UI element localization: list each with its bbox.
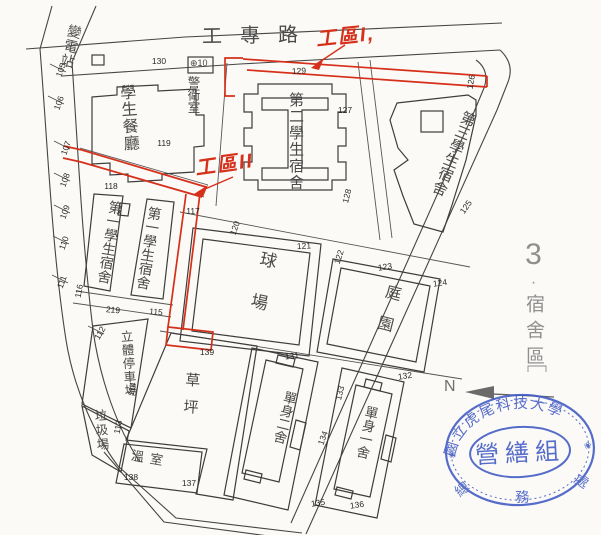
map-number: 123 (377, 262, 392, 272)
dorm3-annex (421, 111, 443, 132)
substation-box (92, 55, 104, 65)
map-number: 124 (432, 278, 447, 288)
guard-room-label: 警衛室 (186, 76, 199, 114)
map-number: 116 (74, 284, 85, 299)
single2-building (242, 360, 303, 482)
dorm2-label: 第二學生宿舍 (288, 92, 303, 191)
map-number: 114 (127, 382, 138, 397)
map-number: 219 (106, 305, 121, 315)
office-stamp: 國立虎尾科技大學 營繕組 總 務 處 ❀ ❀ (435, 382, 601, 520)
road-name-label: 工專路 (202, 25, 316, 47)
map-number: 131 (285, 351, 300, 361)
map-number: 132 (397, 371, 412, 381)
map-number: 115 (149, 307, 163, 317)
map-number: 129 (292, 66, 307, 75)
stamp-division: 營繕組 (474, 438, 565, 470)
area-name: 宿舍區 (524, 294, 543, 372)
map-number: 118 (104, 182, 118, 191)
stamp-office-char3: 處 (571, 470, 591, 491)
area-section-label: 3 · 宿舍區 (524, 238, 543, 372)
map-number: 117 (186, 207, 200, 216)
map-number: 130 (152, 57, 166, 66)
guard-number-label: ⊕10 (190, 59, 208, 68)
map-number: 138 (124, 473, 138, 482)
stamp-flower-left-icon: ❀ (448, 449, 456, 459)
map-number: 136 (349, 500, 364, 510)
map-number: 137 (182, 479, 196, 488)
map-number: 139 (200, 348, 214, 357)
single2-plot (224, 348, 318, 510)
map-number: 127 (338, 106, 352, 115)
map-number: 113 (113, 420, 124, 435)
lawn-label: 草坪 (181, 372, 200, 427)
stamp-flower-right-icon: ❀ (584, 440, 592, 450)
area-dot: · (531, 274, 536, 292)
map-number: 126 (466, 74, 477, 89)
stamp-office-char2: 務 (515, 489, 530, 506)
map-number: 121 (297, 241, 312, 250)
garbage-site-label: 垃圾場 (92, 409, 108, 453)
scanned-site-plan: 工專路 變電站 學生餐廳 ⊕10 警衛室 第二學生宿舍 第三學生宿舍 第一學生宿… (0, 0, 601, 535)
stamp-office-char1: 總 (451, 478, 472, 499)
area-index: 3 (525, 238, 542, 272)
map-number: 135 (310, 498, 325, 508)
cafeteria-label: 學生餐廳 (117, 84, 138, 153)
map-number: 119 (157, 139, 171, 148)
